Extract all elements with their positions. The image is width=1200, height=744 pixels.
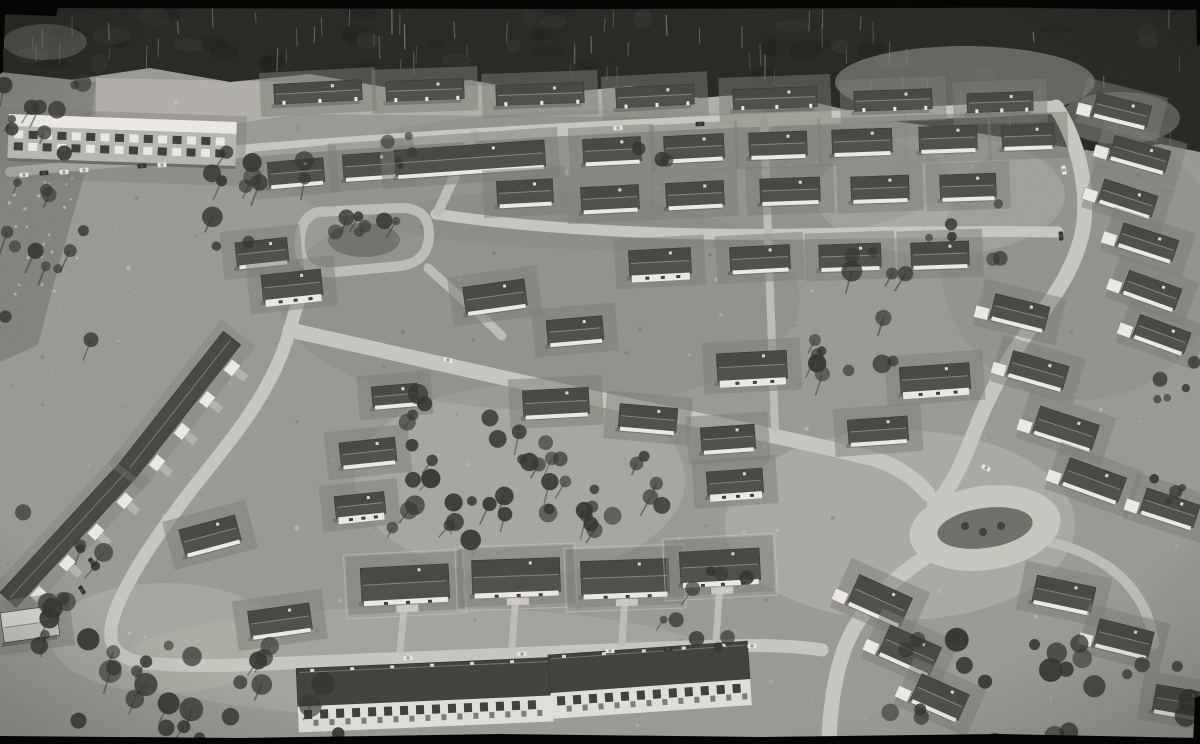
photo-grain-overlay <box>0 0 1200 744</box>
film-edge-top-left-corner <box>0 0 60 16</box>
photo-frame <box>0 0 1200 744</box>
aerial-photo <box>0 0 1200 744</box>
film-grain <box>0 0 1200 744</box>
